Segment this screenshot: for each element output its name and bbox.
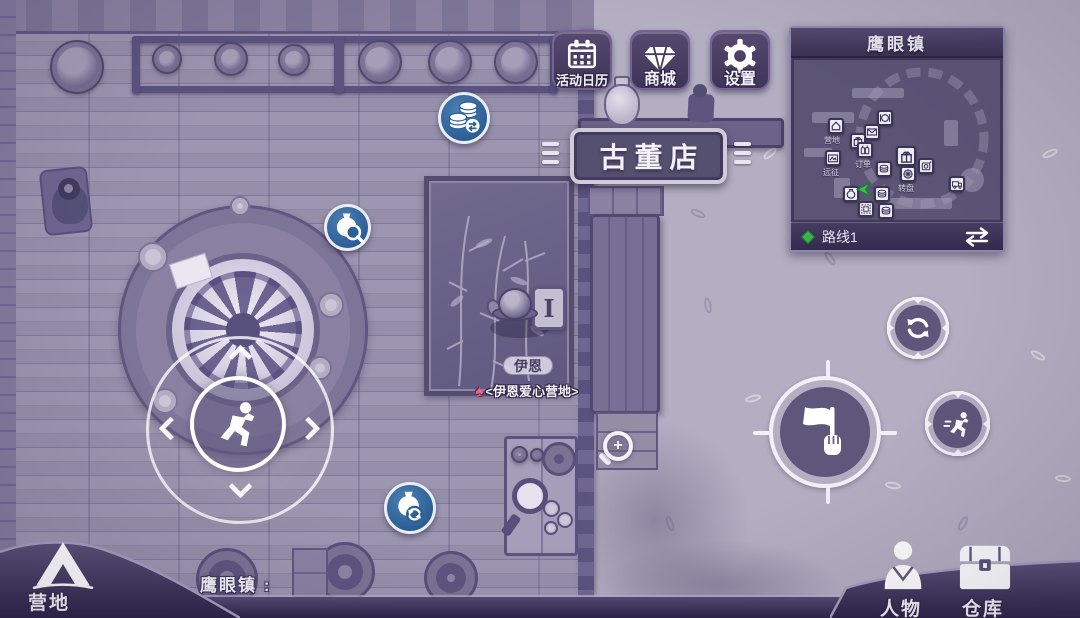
chest-icon <box>954 540 1016 594</box>
npc-helmet <box>498 288 532 320</box>
crosshair-tick <box>826 487 830 504</box>
leaf-decor <box>762 146 779 162</box>
settings-button[interactable]: 设置 <box>710 30 770 90</box>
minimap-route-bar: 路线1 <box>791 222 1003 250</box>
top-wall <box>0 0 594 34</box>
coins-exchange-icon <box>445 99 483 137</box>
poi-house-icon[interactable] <box>828 118 844 134</box>
crate <box>292 548 328 598</box>
settings-label: 设置 <box>704 65 776 89</box>
shop-button[interactable]: 商城 <box>630 30 690 90</box>
shelf-rail <box>132 36 558 43</box>
person-icon <box>876 538 930 594</box>
coin <box>544 521 558 535</box>
appraise-button[interactable] <box>324 204 371 251</box>
teapot <box>278 44 310 76</box>
poi-stamp-icon[interactable] <box>858 201 874 217</box>
shelf-post <box>334 36 344 93</box>
coin <box>557 512 573 528</box>
left-brick-wall <box>0 0 16 597</box>
shelf-plate <box>358 40 402 84</box>
shopkeeper-hair <box>64 184 73 193</box>
leaf-decor <box>956 515 970 532</box>
poi-orders-icon[interactable] <box>857 142 873 158</box>
poi-label: 转盘 <box>898 183 914 194</box>
leaf-decor <box>823 250 838 267</box>
sign-decor-bars <box>734 142 751 164</box>
poi-label: 订单 <box>855 159 871 170</box>
game-screen: 古董店 I 伊恩 ♠<伊恩爱心营地> 活动日历 <box>0 0 1080 618</box>
poi-label: 远征 <box>823 167 839 178</box>
route-marker-icon <box>801 229 815 243</box>
leaf-decor <box>689 207 706 220</box>
poi-wheel-icon[interactable] <box>900 166 916 182</box>
spade-icon: ♠ <box>475 383 483 400</box>
crosshair-tick <box>826 360 830 377</box>
shelf-rail <box>132 86 558 93</box>
poi-expedition-icon[interactable] <box>825 150 841 166</box>
leaf-decor <box>1041 147 1058 160</box>
character-label: 人物 <box>880 594 922 618</box>
saucer <box>230 196 250 216</box>
minimap-panel[interactable]: 鹰眼镇 营地 订单 远征 <box>789 26 1005 252</box>
poi-gift-icon[interactable] <box>896 146 916 166</box>
shop-label: 商城 <box>624 65 696 89</box>
poi-slot-machine-icon[interactable] <box>918 158 934 174</box>
zoom-hotspot-button[interactable]: + <box>603 431 633 461</box>
leaf-decor <box>744 393 761 404</box>
minimap-title: 鹰眼镇 <box>867 30 927 55</box>
npc-sign-board: I <box>532 286 566 330</box>
npc-camp-tag: ♠<伊恩爱心营地> <box>452 381 602 400</box>
crosshair-tick <box>753 431 770 435</box>
plus-glyph: + <box>613 438 622 454</box>
npc-camp-tag-text: <伊恩爱心营地> <box>485 384 578 399</box>
porch-steps <box>588 186 664 216</box>
poi-coins-icon[interactable] <box>878 203 894 219</box>
npc-name: 伊恩 <box>514 356 542 376</box>
display-vase <box>604 84 640 126</box>
shelf-plate <box>494 40 538 84</box>
sign-decor-bars <box>542 142 559 164</box>
warehouse-button[interactable]: 仓库 <box>948 538 1024 618</box>
floor-jar <box>50 40 104 94</box>
teapot <box>214 42 248 76</box>
activity-calendar-label: 活动日历 <box>546 70 618 89</box>
runner-icon <box>943 409 973 439</box>
restore-vase-button[interactable] <box>384 482 436 534</box>
vase-magnifier-icon <box>331 211 365 245</box>
shop-sign: 古董店 <box>570 128 727 184</box>
warehouse-label: 仓库 <box>962 594 1004 618</box>
minimap-header: 鹰眼镇 <box>791 28 1003 58</box>
npc-name-plate: 伊恩 <box>503 356 553 375</box>
minimap-body[interactable]: 营地 订单 远征 转盘 <box>794 60 1000 220</box>
camp-label: 营地 <box>28 588 70 615</box>
poi-coins-icon[interactable] <box>876 161 892 177</box>
coin-exchange-button[interactable] <box>438 92 490 144</box>
runner-icon <box>212 398 264 450</box>
crosshair-tick <box>880 431 897 435</box>
sprint-button-face <box>933 399 982 448</box>
character-button[interactable]: 人物 <box>868 538 938 618</box>
shelf-post <box>132 36 140 93</box>
poi-label: 营地 <box>824 135 840 146</box>
joystick-knob[interactable] <box>190 376 286 472</box>
activity-calendar-button[interactable]: 活动日历 <box>552 30 612 90</box>
flag-hand-icon <box>795 402 855 462</box>
poi-coins-icon[interactable] <box>874 186 890 202</box>
camp-button[interactable]: 营地 <box>24 540 134 616</box>
route-label: 路线1 <box>822 227 963 247</box>
refresh-icon <box>903 313 933 343</box>
plate <box>542 442 576 476</box>
poi-mail-icon[interactable] <box>864 124 880 140</box>
calendar-icon <box>565 38 599 72</box>
shop-sign-text: 古董店 <box>592 136 704 176</box>
npc-sign-letter: I <box>543 294 554 323</box>
tent-icon <box>32 540 94 590</box>
flag-button-face <box>780 387 870 477</box>
leaf-decor <box>1055 474 1072 482</box>
saucer <box>318 292 344 318</box>
sprint-button[interactable] <box>925 391 990 456</box>
leaf-decor <box>1029 348 1046 362</box>
player-marker-green-arrow <box>854 181 871 198</box>
flag-button[interactable] <box>769 376 881 488</box>
vase-refresh-icon <box>392 490 428 526</box>
teacup <box>152 44 182 74</box>
leaf-decor <box>885 481 902 491</box>
refresh-button-face <box>895 305 941 351</box>
shelf-plate <box>428 40 472 84</box>
swap-routes-icon[interactable] <box>963 227 991 247</box>
leaf-decor <box>703 297 713 314</box>
poi-truck-icon[interactable] <box>949 176 965 192</box>
poi-restaurant-icon[interactable] <box>877 110 893 126</box>
saucer <box>138 242 168 272</box>
bowl <box>511 446 528 463</box>
refresh-button[interactable] <box>887 297 949 359</box>
